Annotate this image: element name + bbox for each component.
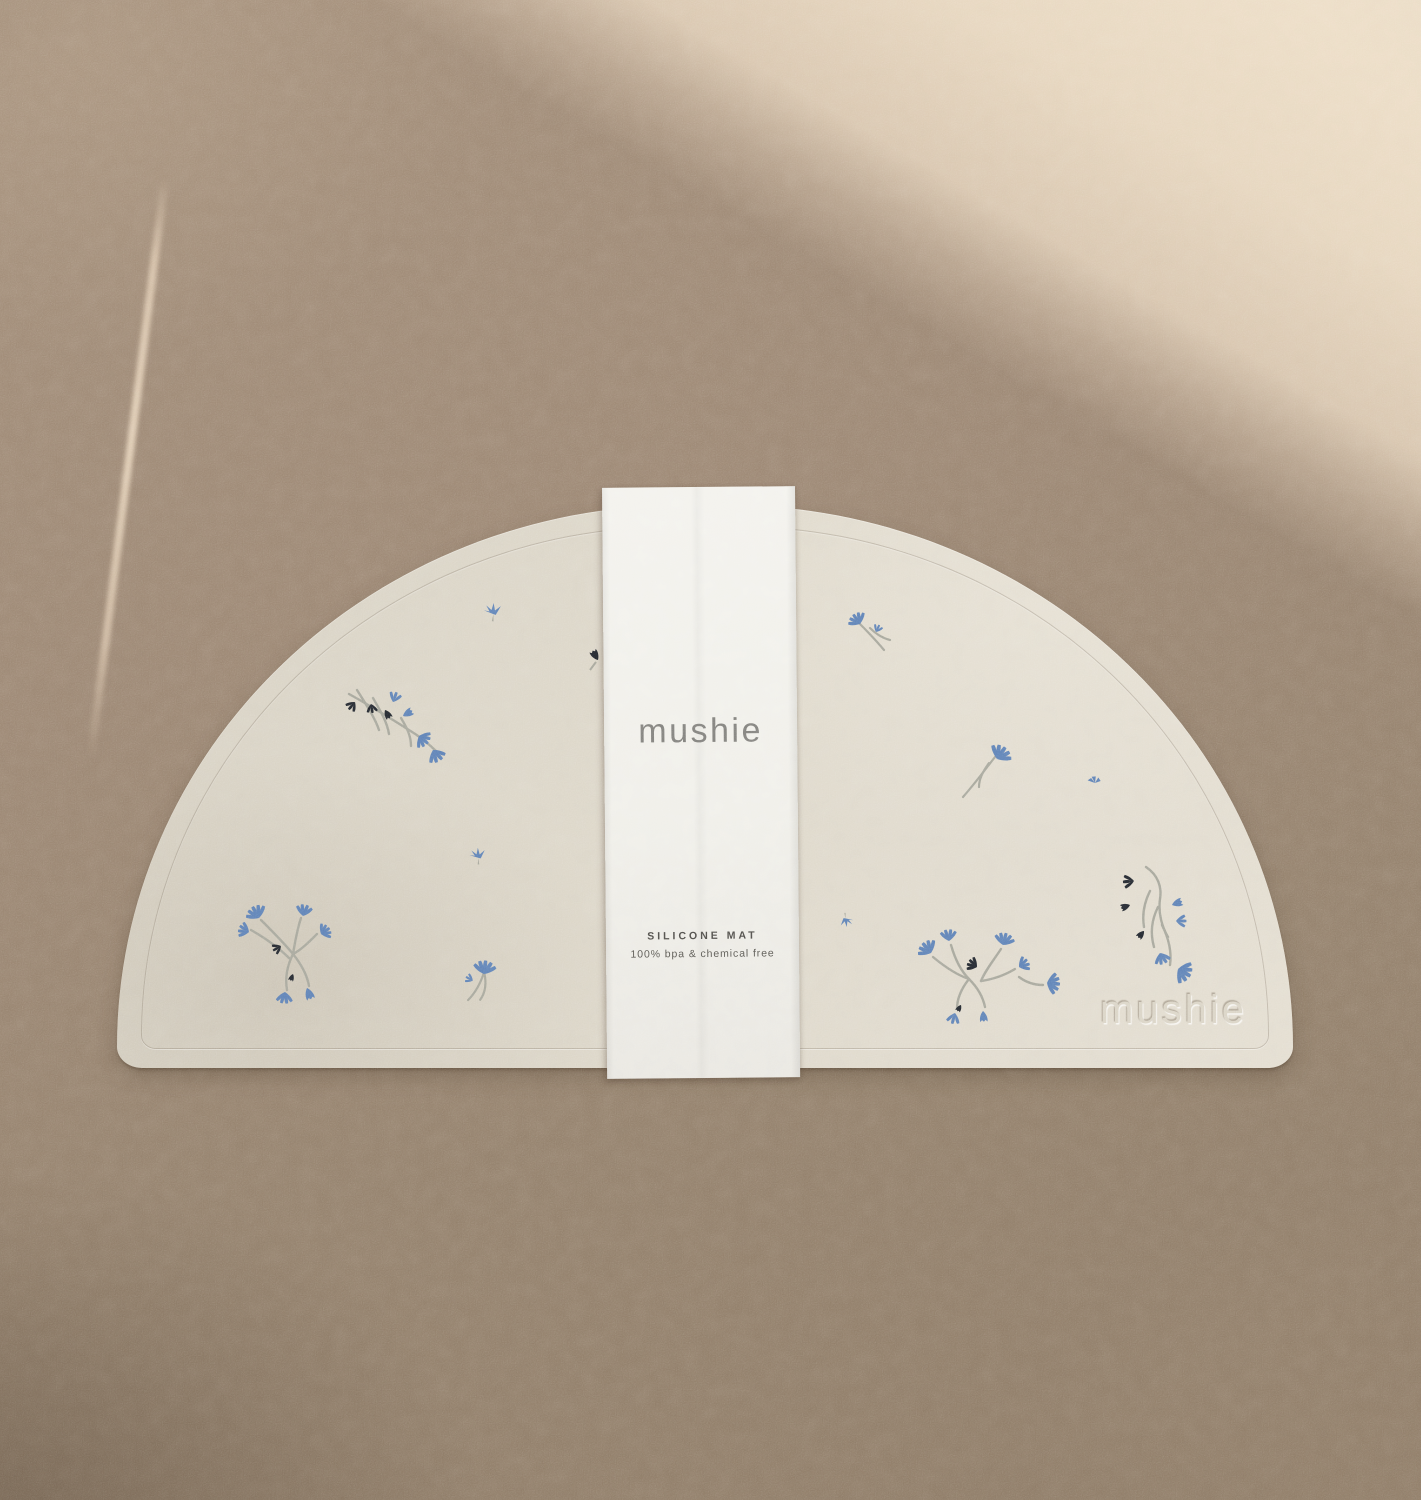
band-brand-logo: mushie [604,711,797,752]
band-tagline: 100% bpa & chemical free [606,947,799,961]
paper-band: mushie SILICONE MAT 100% bpa & chemical … [602,486,800,1079]
embossed-brand-logo: mushie [1100,988,1300,1033]
product-photo-scene: mushie mushie SILICONE MAT 100% bpa & ch… [0,0,1421,1500]
band-product-name: SILICONE MAT [606,929,799,943]
